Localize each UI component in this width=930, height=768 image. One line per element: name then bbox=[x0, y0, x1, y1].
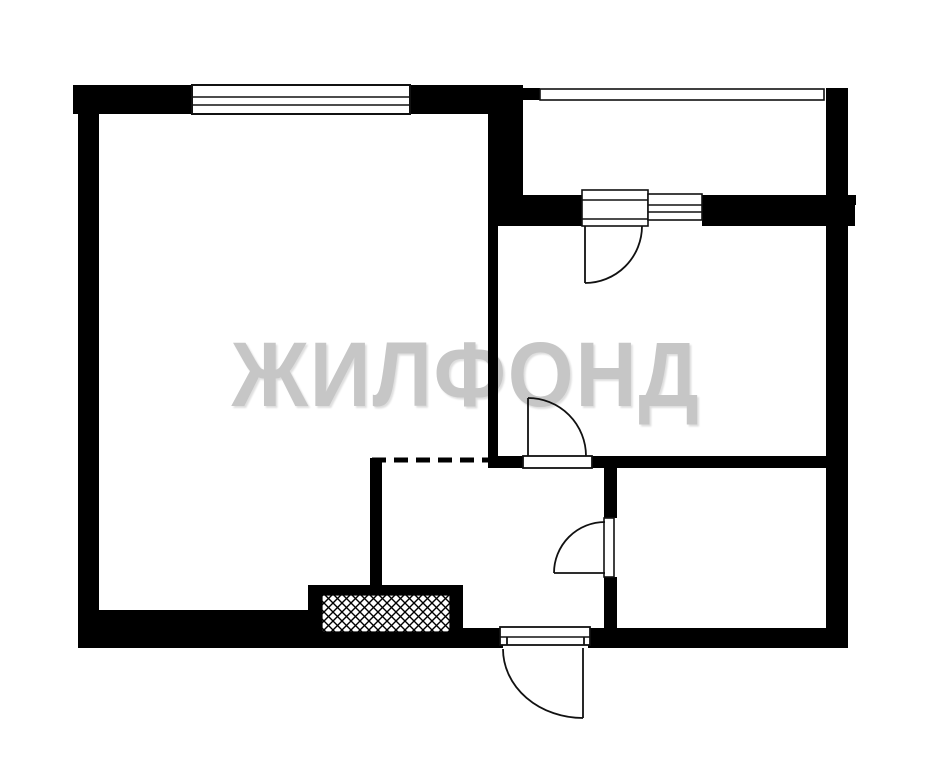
wall-left bbox=[78, 113, 99, 613]
wall-top-right bbox=[410, 85, 523, 114]
wall-bottom-right bbox=[588, 628, 848, 648]
entrance-door-block bbox=[500, 627, 590, 645]
walls-layer bbox=[73, 85, 856, 648]
wall-room2-bottom-b bbox=[592, 456, 828, 468]
window-living-room bbox=[192, 85, 410, 114]
wall-hall-bottom bbox=[604, 577, 617, 628]
floor-plan-page: ЖИЛФОНД bbox=[0, 0, 930, 768]
wall-balcony-bottom-a bbox=[488, 195, 582, 226]
wall-top-left bbox=[73, 85, 192, 114]
door-entrance bbox=[503, 649, 583, 718]
window-balcony-small bbox=[648, 194, 702, 220]
balcony-door-block bbox=[582, 190, 648, 226]
wall-balcony-corner bbox=[523, 88, 540, 100]
door-bathroom bbox=[554, 522, 605, 573]
wall-bottom-mid bbox=[463, 628, 503, 648]
wall-right bbox=[826, 88, 848, 648]
vent-shaft-hatch bbox=[322, 595, 450, 632]
vent-layer bbox=[308, 585, 463, 648]
door-panel-bath bbox=[604, 518, 614, 577]
wall-room2-bottom-a bbox=[488, 456, 523, 468]
wall-hall-top bbox=[604, 466, 617, 518]
door-balcony bbox=[585, 226, 642, 283]
wall-mid-thin bbox=[488, 224, 498, 456]
wall-balcony-bottom-b bbox=[702, 195, 855, 226]
floor-plan-drawing bbox=[0, 0, 930, 768]
wall-partition bbox=[370, 458, 382, 588]
wall-mid-thick bbox=[488, 113, 523, 199]
door-room2 bbox=[528, 398, 586, 456]
door-sill-room2 bbox=[523, 456, 592, 468]
window-balcony-strip bbox=[540, 89, 824, 100]
wall-bottom-left bbox=[78, 610, 308, 648]
